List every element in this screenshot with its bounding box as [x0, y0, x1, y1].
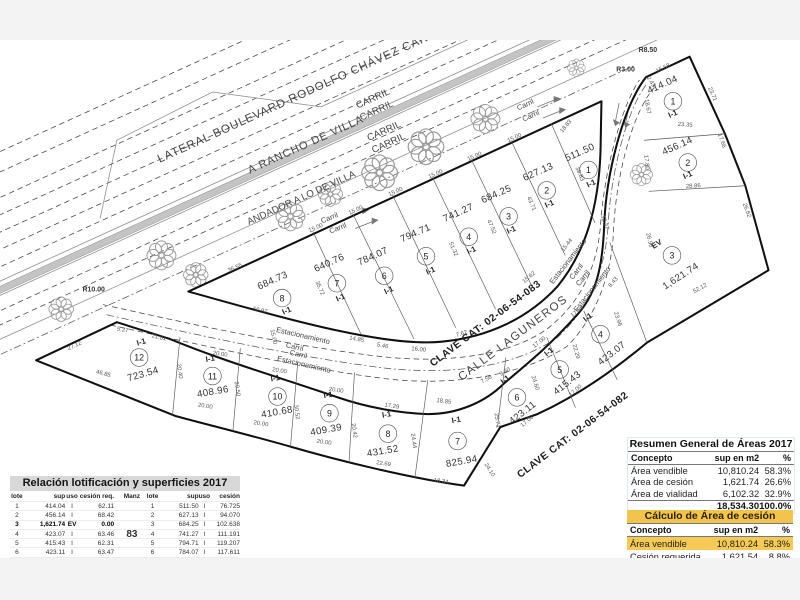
- svg-text:431.52: 431.52: [366, 443, 399, 459]
- svg-text:4: 4: [598, 330, 603, 340]
- svg-text:511.50: 511.50: [563, 141, 596, 164]
- lot-b8: 8431.52I-1: [366, 409, 399, 460]
- svg-text:6: 6: [382, 271, 387, 281]
- svg-text:9: 9: [327, 408, 332, 418]
- radius-label-r3: R3.00: [616, 67, 635, 74]
- plan-canvas: LATERAL BOULEVARD RODOLFO CHÁVEZ CARRILL…: [0, 40, 800, 558]
- svg-text:27.12: 27.12: [67, 341, 83, 353]
- svg-text:15.68: 15.68: [655, 63, 672, 75]
- svg-text:7: 7: [334, 278, 339, 288]
- lot-a3: 3684.25I-1: [480, 183, 518, 236]
- svg-text:7.56: 7.56: [480, 374, 494, 385]
- table-row: 2456.14I68.422627.13I94.070: [10, 510, 240, 519]
- lot-b12: 12723.54I-1: [126, 336, 160, 384]
- lot-b7: 7825.94I-1: [445, 415, 479, 470]
- svg-text:1: 1: [670, 97, 675, 107]
- relacion-table-header: lote sup uso cesión req. Manz lote sup u…: [10, 491, 240, 501]
- svg-text:46.85: 46.85: [95, 369, 112, 379]
- svg-text:21.81: 21.81: [151, 333, 167, 342]
- street-label-rancho: A RANCHO DE VILLA: [246, 113, 365, 176]
- svg-text:39.83: 39.83: [573, 166, 585, 183]
- svg-text:18.85: 18.85: [436, 398, 452, 406]
- svg-text:3: 3: [670, 251, 675, 261]
- svg-text:I-1: I-1: [505, 224, 518, 236]
- svg-text:I-1: I-1: [270, 373, 281, 384]
- svg-text:51.32: 51.32: [447, 241, 459, 257]
- svg-text:6: 6: [515, 393, 520, 403]
- svg-text:26.98: 26.98: [644, 232, 654, 249]
- svg-text:825.94: 825.94: [445, 454, 479, 470]
- svg-text:24.44: 24.44: [409, 433, 417, 449]
- lot-a1: 1511.50I-1: [563, 141, 597, 189]
- svg-text:20.50: 20.50: [233, 381, 241, 397]
- svg-text:I-1: I-1: [667, 108, 680, 120]
- svg-text:I-1: I-1: [543, 198, 556, 210]
- svg-text:20.00: 20.00: [197, 403, 213, 411]
- page: { "colors": {"page_bg":"#f3f3f4","canvas…: [0, 0, 800, 600]
- svg-text:2: 2: [544, 186, 549, 196]
- resumen-table: Resumen General de Áreas 2017 Concepto s…: [627, 437, 795, 514]
- lot-a7: 7640.76I-1: [312, 252, 347, 304]
- calculo-table: Cálculo de Área de cesión Concepto sup e…: [627, 510, 793, 558]
- svg-text:5.27: 5.27: [116, 327, 128, 335]
- svg-text:18.83: 18.83: [559, 118, 574, 134]
- svg-text:15.00: 15.00: [467, 151, 484, 163]
- svg-text:I-1: I-1: [281, 304, 294, 316]
- lot-a6: 6784.07I-1: [356, 245, 395, 296]
- svg-text:24.10: 24.10: [483, 462, 496, 478]
- calculo-table-title: Cálculo de Área de cesión: [627, 510, 793, 523]
- laguneros-street-lines: [103, 80, 654, 381]
- svg-text:410.68: 410.68: [260, 404, 293, 420]
- svg-text:1: 1: [586, 165, 591, 175]
- svg-text:627.13: 627.13: [521, 161, 555, 184]
- relacion-table: Relación lotificación y superficies 2017…: [10, 476, 240, 558]
- svg-text:22.29: 22.29: [571, 344, 581, 361]
- svg-text:794.71: 794.71: [399, 222, 433, 245]
- svg-text:I-1: I-1: [451, 415, 462, 426]
- relacion-table-title: Relación lotificación y superficies 2017: [10, 476, 240, 491]
- table-row: 7825.94I123.897640.76I96.114: [10, 557, 240, 558]
- svg-text:52.12: 52.12: [692, 283, 708, 295]
- block-b-outline: [36, 57, 768, 486]
- table-row: Área de cesión1,621.7426.6%: [628, 477, 794, 489]
- table-row: Cesión requerida1,621.548.8%: [627, 550, 793, 558]
- street-label-carril: Carril: [328, 220, 348, 235]
- svg-text:408.96: 408.96: [196, 384, 229, 400]
- table-row: Área vendible10,810.2458.3%: [628, 465, 794, 477]
- svg-text:640.76: 640.76: [312, 252, 346, 275]
- svg-text:I-1: I-1: [585, 177, 598, 189]
- svg-text:456.14: 456.14: [661, 135, 695, 158]
- svg-text:423.07: 423.07: [596, 339, 628, 367]
- svg-text:15.00: 15.00: [428, 169, 445, 181]
- lot-b2: 2456.14I-1: [661, 135, 697, 181]
- table-row: 31,621.74EV0.003684.25I102.638: [10, 520, 240, 529]
- svg-text:20.00: 20.00: [316, 439, 332, 447]
- svg-text:3: 3: [506, 212, 511, 222]
- svg-text:8.43: 8.43: [608, 276, 620, 289]
- svg-text:18.34: 18.34: [433, 478, 449, 486]
- svg-text:2: 2: [685, 158, 690, 168]
- street-label-carril: Carril: [521, 108, 541, 124]
- svg-text:23.35: 23.35: [677, 122, 693, 129]
- svg-text:I-1: I-1: [136, 336, 148, 347]
- svg-text:20.00: 20.00: [253, 420, 269, 428]
- svg-text:36.55: 36.55: [227, 262, 244, 274]
- svg-text:5: 5: [557, 365, 562, 375]
- svg-text:10: 10: [273, 392, 283, 402]
- table-row: Área vendible10,810.2458.3%: [627, 537, 793, 550]
- svg-text:8: 8: [280, 293, 285, 303]
- svg-text:14.85: 14.85: [349, 336, 365, 345]
- svg-text:12: 12: [134, 353, 144, 363]
- svg-text:11: 11: [208, 371, 217, 381]
- svg-text:23.96: 23.96: [612, 311, 623, 328]
- svg-text:4: 4: [466, 232, 471, 242]
- svg-text:15.00: 15.00: [507, 132, 524, 144]
- svg-text:18.67: 18.67: [643, 99, 651, 115]
- svg-text:I-1: I-1: [383, 284, 396, 296]
- svg-text:25.71: 25.71: [493, 413, 501, 429]
- lot-a5: 5794.71I-1: [399, 222, 437, 277]
- svg-text:22.69: 22.69: [376, 460, 392, 468]
- svg-text:17.80: 17.80: [642, 155, 650, 171]
- svg-text:I-1: I-1: [465, 244, 478, 256]
- svg-text:784.07: 784.07: [356, 245, 390, 268]
- radius-label-r8: R8.50: [639, 47, 658, 54]
- svg-text:8: 8: [385, 429, 390, 439]
- table-row: 6423.11I63.476784.07I117.611: [10, 547, 240, 556]
- svg-text:723.54: 723.54: [126, 365, 160, 384]
- svg-text:409.39: 409.39: [310, 422, 343, 438]
- manzana-number: 83: [118, 529, 146, 540]
- svg-text:I-1: I-1: [581, 311, 594, 324]
- table-row: 4423.07I63.46834741.27I111.191: [10, 529, 240, 538]
- lot-b3-ev: 31,621.74EV: [650, 237, 701, 292]
- svg-text:50.97: 50.97: [252, 307, 268, 316]
- resumen-table-header: Concepto sup en m2 %: [628, 451, 794, 465]
- svg-text:7: 7: [455, 436, 460, 446]
- calculo-table-header: Concepto sup en m2 %: [627, 523, 793, 537]
- svg-text:24.60: 24.60: [529, 375, 540, 392]
- svg-text:20.00: 20.00: [212, 351, 228, 359]
- resumen-table-title: Resumen General de Áreas 2017: [628, 438, 794, 451]
- svg-text:684.25: 684.25: [480, 183, 514, 206]
- svg-text:741.27: 741.27: [442, 202, 476, 225]
- svg-text:I-1: I-1: [682, 169, 695, 181]
- svg-text:47.52: 47.52: [485, 219, 497, 235]
- radius-label-r10: R10.00: [83, 287, 106, 294]
- table-row: Área de vialidad6,102.3232.9%: [628, 488, 794, 500]
- svg-text:16.00: 16.00: [411, 346, 427, 354]
- table-row: 1414.04I62.111511.50I76.725: [10, 501, 240, 510]
- svg-text:5: 5: [424, 252, 429, 262]
- svg-text:684.73: 684.73: [256, 269, 290, 292]
- table-row: 5415.43I62.315794.71I119.207: [10, 538, 240, 547]
- svg-text:28.86: 28.86: [686, 183, 702, 190]
- svg-text:I-1: I-1: [334, 291, 347, 303]
- svg-text:43.71: 43.71: [525, 196, 537, 213]
- dimension-labels: 15.00 15.00 15.00 15.00 15.00 15.00 36.5…: [67, 63, 752, 486]
- svg-text:5.46: 5.46: [376, 342, 389, 350]
- svg-text:35.72: 35.72: [313, 280, 325, 296]
- lot-a2: 2627.13I-1: [521, 161, 556, 210]
- lot-a4: 4741.27I-1: [442, 202, 478, 257]
